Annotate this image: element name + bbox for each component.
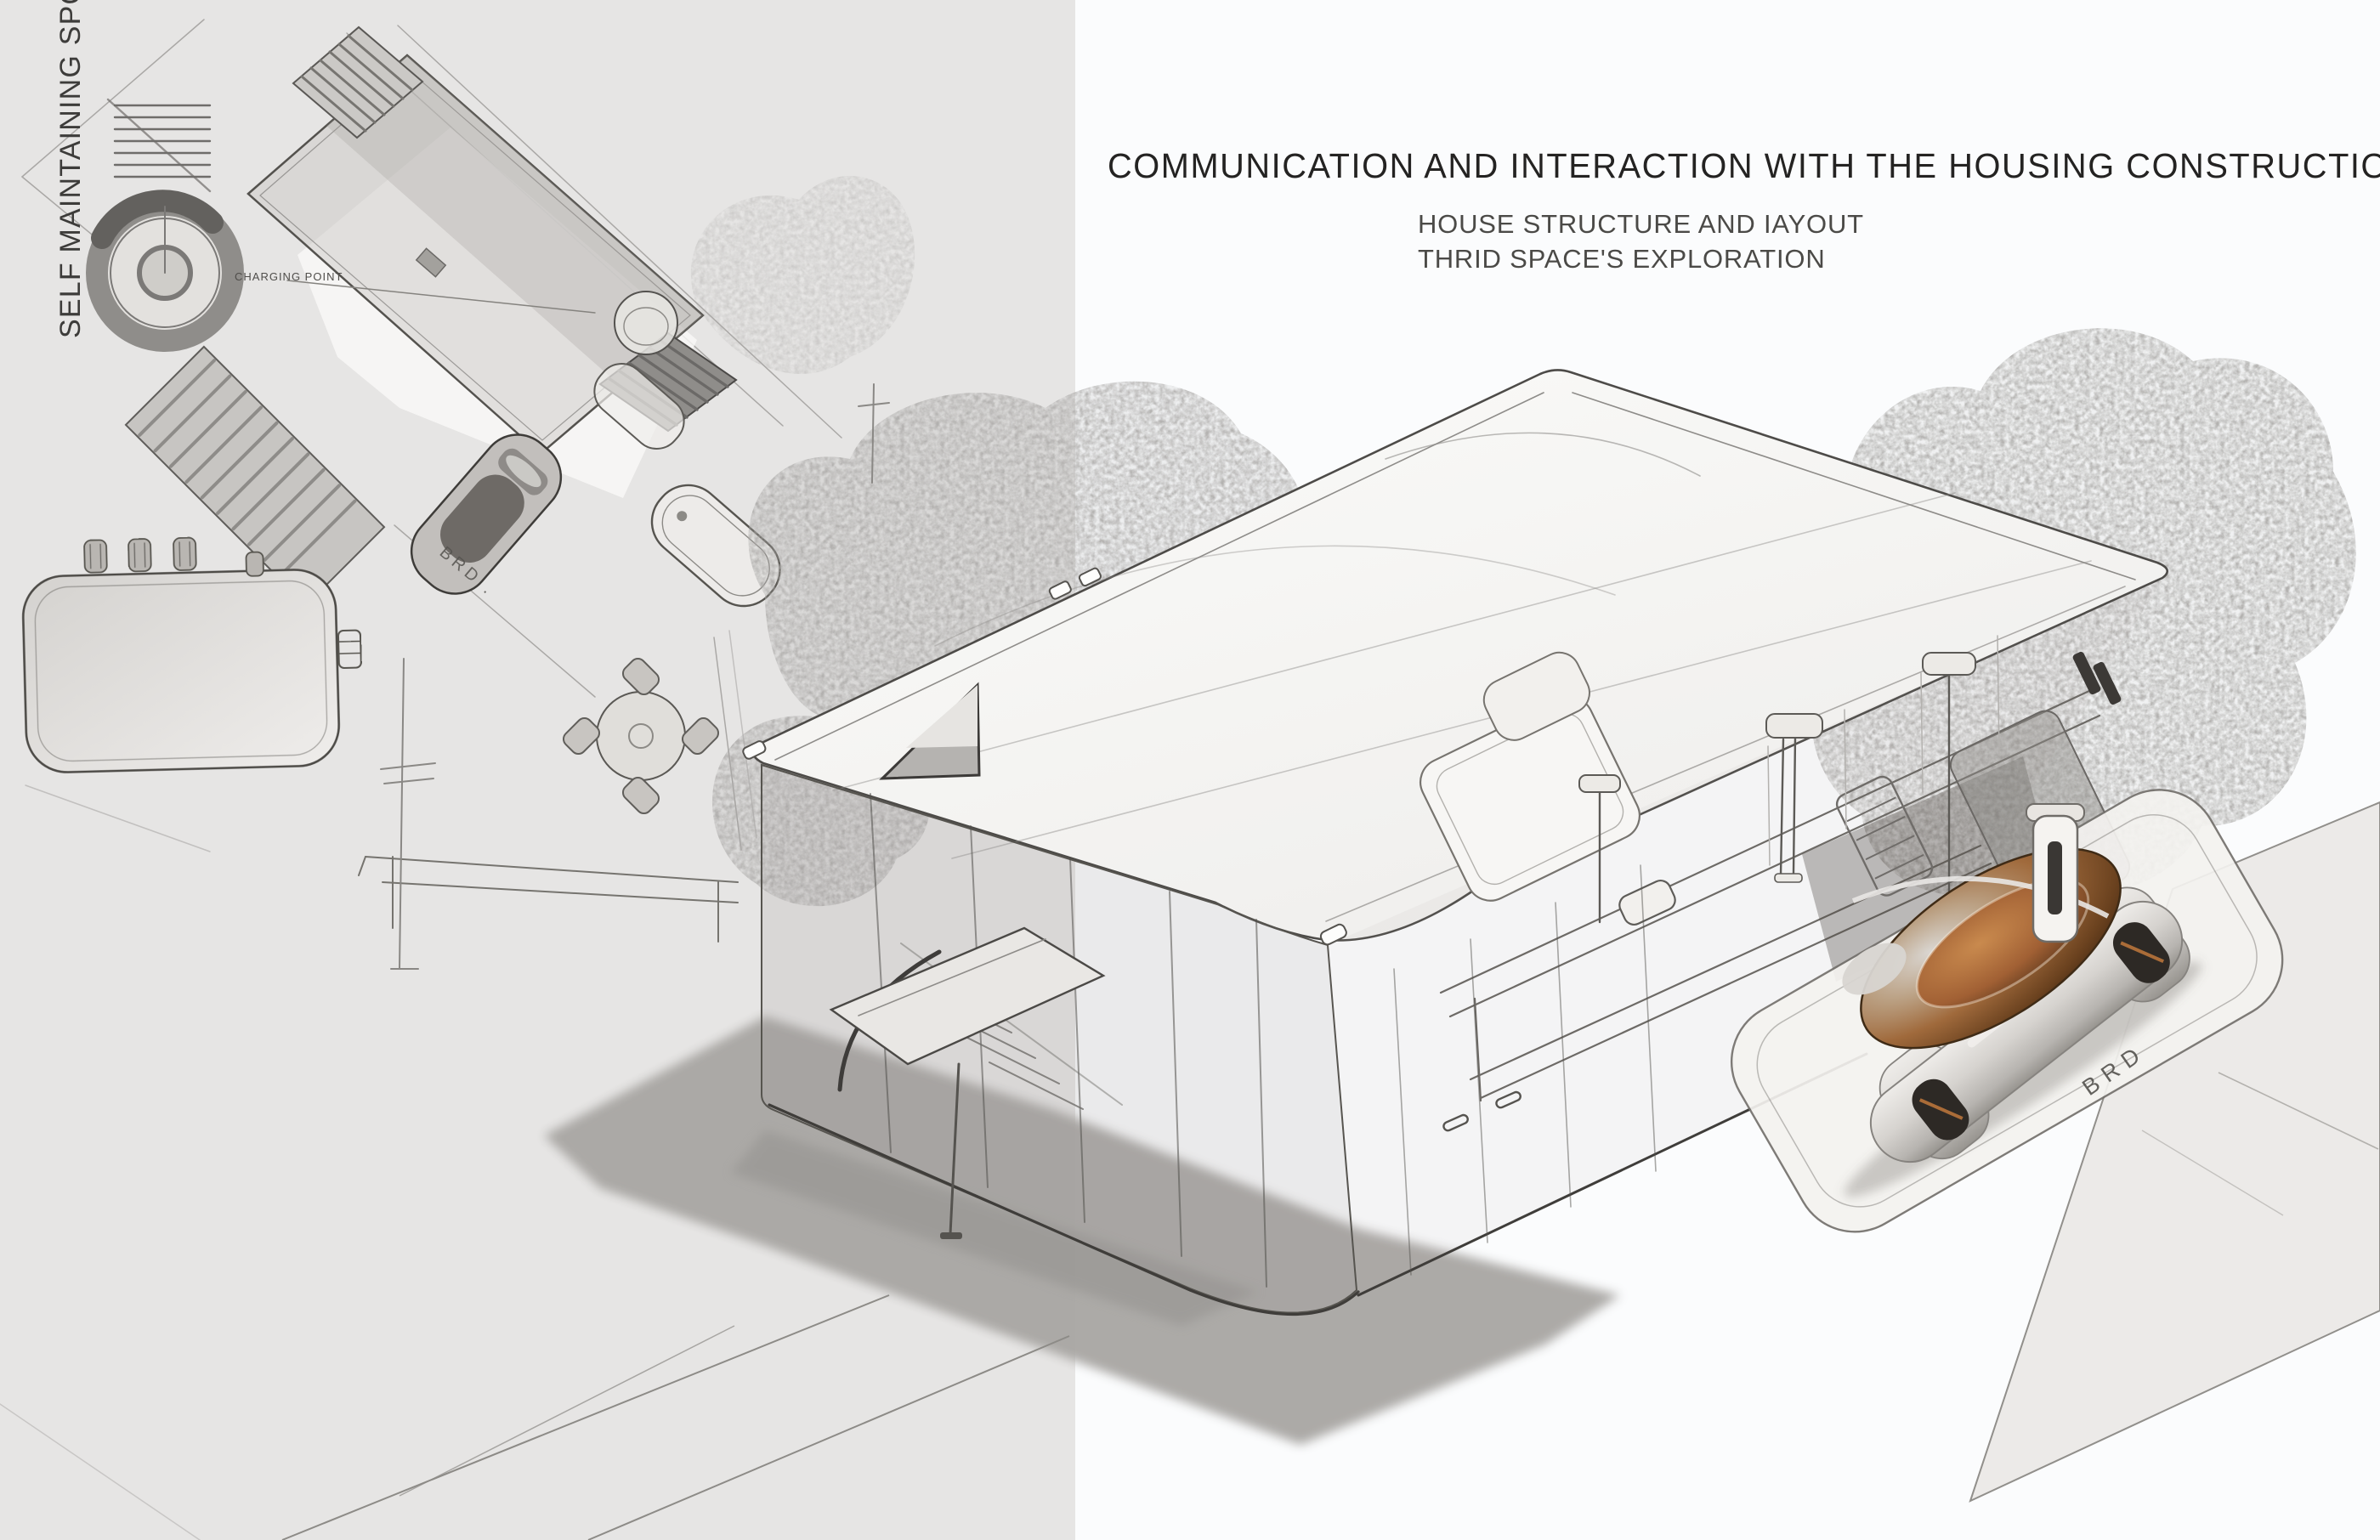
antenna-pole <box>381 659 435 969</box>
board-subtitle: HOUSE STRUCTURE AND IAYOUT THRID SPACE'S… <box>1418 207 1864 276</box>
plan-stairs <box>108 99 210 191</box>
road-sketch-lines <box>282 1295 1069 1540</box>
side-vertical-label: SELF MAINTAINING SPOT <box>54 0 88 338</box>
tree-patch-plan <box>691 176 915 374</box>
subtitle-line-2: THRID SPACE'S EXPLORATION <box>1418 241 1864 276</box>
plan-charging-pod <box>97 201 233 341</box>
board-title: COMMUNICATION AND INTERACTION WITH THE H… <box>1108 146 2380 186</box>
sketch-scene: CHARGING POINT BRD . <box>0 0 2380 1540</box>
subtitle-line-1: HOUSE STRUCTURE AND IAYOUT <box>1418 207 1864 241</box>
bench-rails <box>359 857 738 942</box>
charging-mast <box>2026 804 2084 942</box>
design-board: CHARGING POINT BRD . <box>0 0 2380 1540</box>
plan-table-set <box>560 655 721 816</box>
